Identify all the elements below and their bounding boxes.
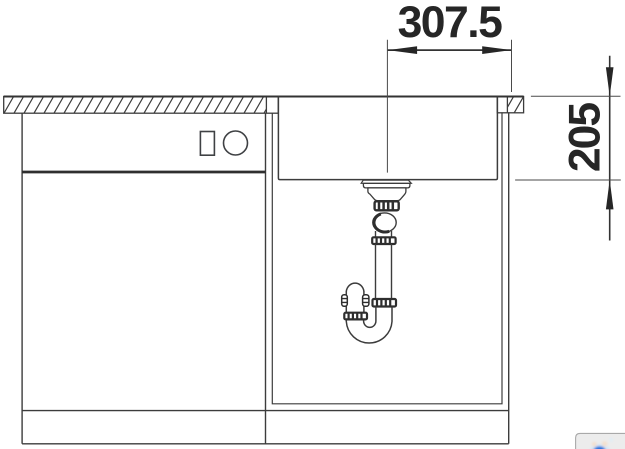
svg-text:205: 205	[561, 103, 610, 172]
svg-text:307.5: 307.5	[398, 0, 503, 47]
